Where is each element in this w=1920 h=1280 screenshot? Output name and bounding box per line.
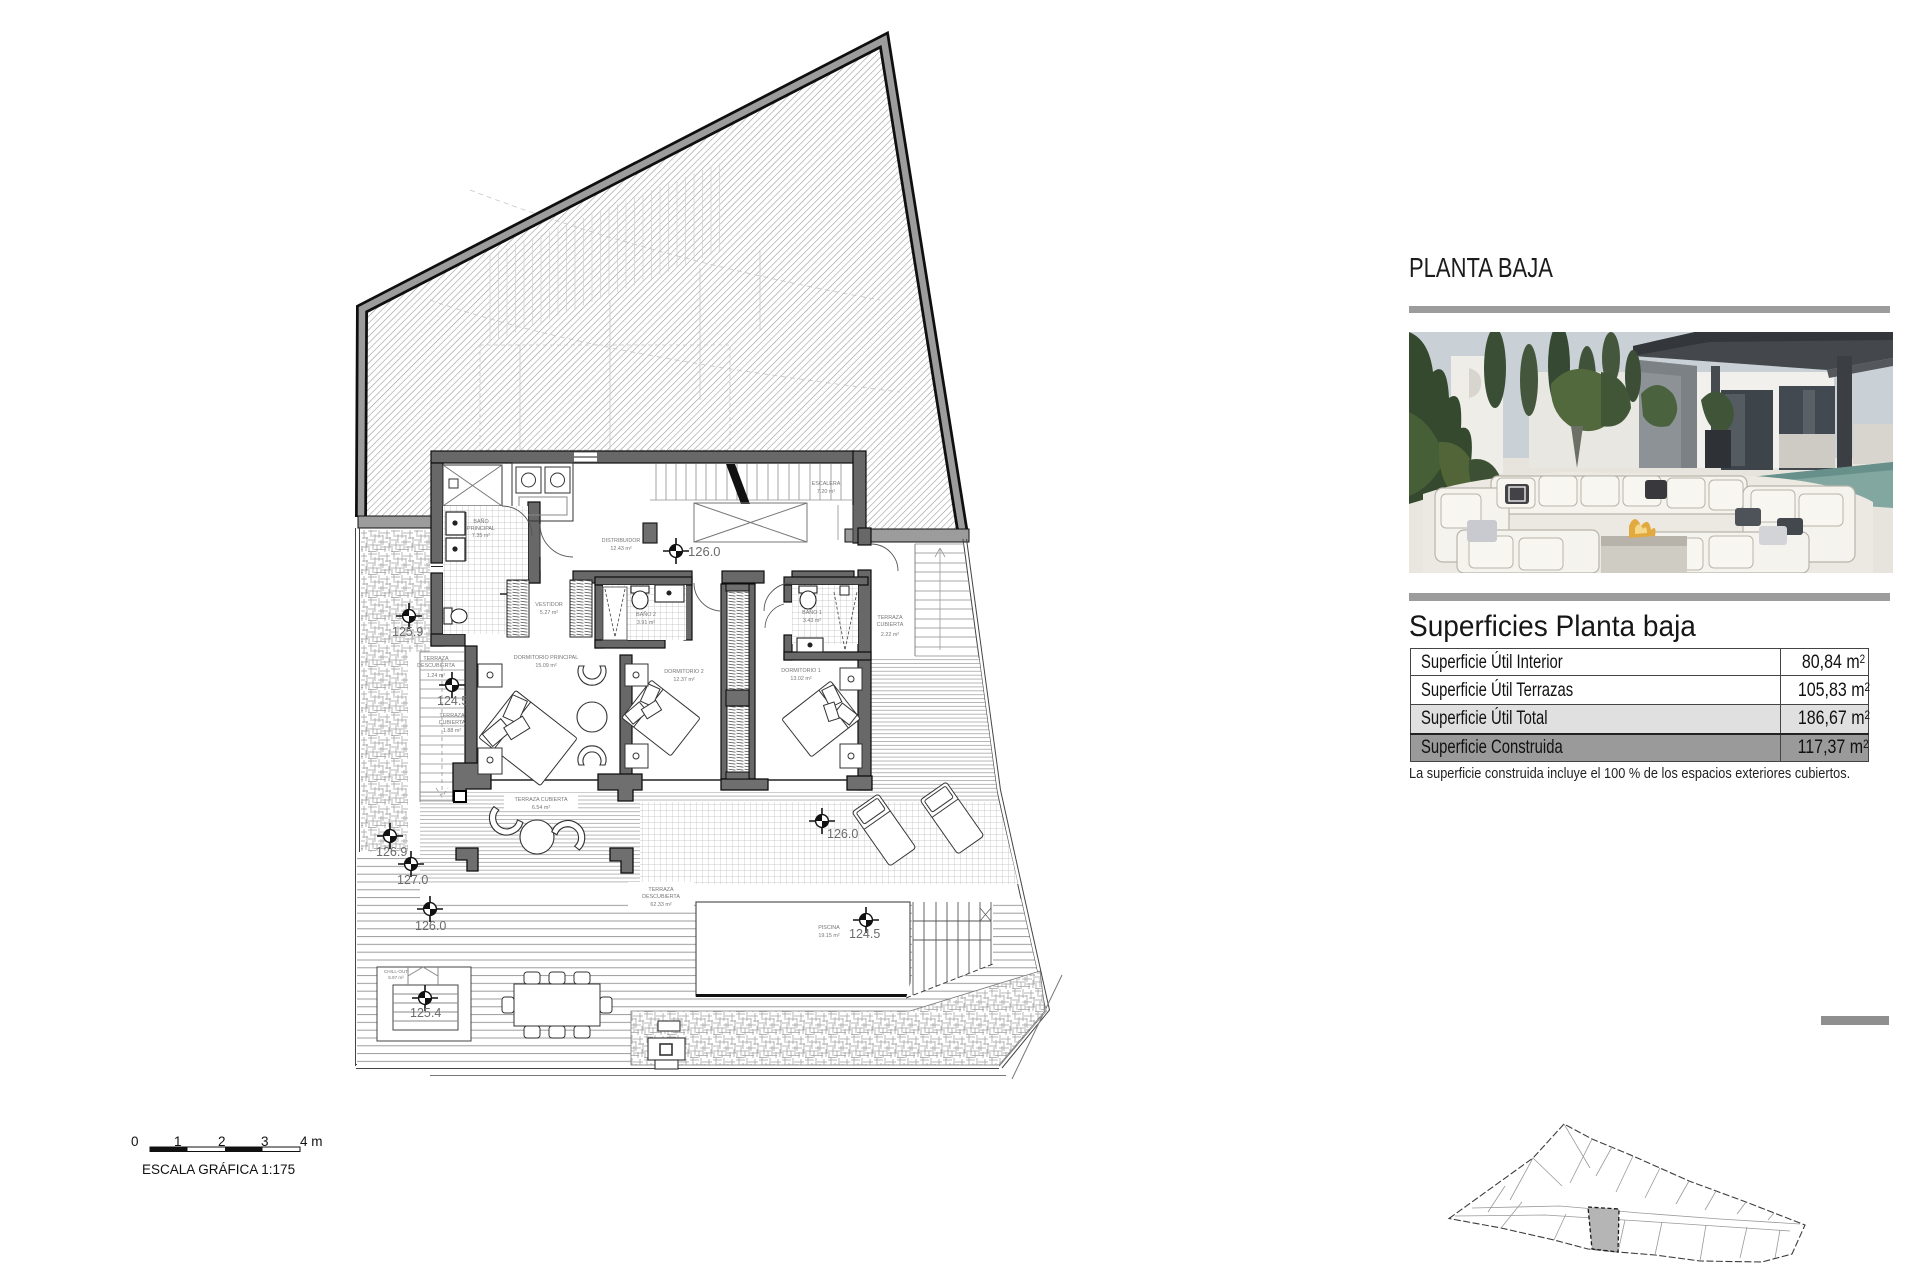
svg-text:PRINCIPAL: PRINCIPAL (467, 526, 495, 532)
svg-text:VESTIDOR: VESTIDOR (535, 602, 563, 608)
svg-text:TERRAZA: TERRAZA (423, 656, 449, 662)
svg-text:TERRAZA: TERRAZA (439, 713, 465, 719)
svg-text:2.22 m²: 2.22 m² (881, 632, 899, 638)
svg-text:CHILL-OUT: CHILL-OUT (384, 969, 408, 974)
svg-text:125.9: 125.9 (392, 625, 423, 639)
svg-text:126.0: 126.0 (415, 919, 446, 933)
svg-text:19.15 m²: 19.15 m² (818, 933, 839, 939)
svg-text:BAÑO 2: BAÑO 2 (636, 611, 656, 618)
svg-text:126.0: 126.0 (827, 827, 858, 841)
svg-text:CUBIERTA: CUBIERTA (439, 720, 466, 726)
svg-text:5.97 m²: 5.97 m² (388, 975, 404, 980)
svg-text:BAÑO: BAÑO (473, 518, 488, 525)
svg-text:BAÑO 1: BAÑO 1 (802, 609, 822, 616)
svg-text:TERRAZA: TERRAZA (648, 887, 674, 893)
svg-text:7.35 m²: 7.35 m² (472, 533, 490, 539)
svg-text:5.27 m²: 5.27 m² (540, 610, 558, 616)
svg-text:DORMITORIO PRINCIPAL: DORMITORIO PRINCIPAL (514, 655, 579, 661)
svg-text:125.4: 125.4 (410, 1006, 441, 1020)
svg-text:ESCALA GRÁFICA 1:175: ESCALA GRÁFICA 1:175 (142, 1162, 295, 1177)
svg-text:12.43 m²: 12.43 m² (610, 546, 631, 552)
svg-text:127.0: 127.0 (397, 873, 428, 887)
svg-text:124.5: 124.5 (849, 927, 880, 941)
svg-text:124.5: 124.5 (437, 694, 468, 708)
svg-text:DORMITORIO 2: DORMITORIO 2 (664, 669, 703, 675)
svg-text:13.02 m²: 13.02 m² (790, 676, 811, 682)
svg-text:CUBIERTA: CUBIERTA (877, 622, 904, 628)
svg-text:0: 0 (131, 1134, 139, 1149)
svg-text:126.0: 126.0 (688, 544, 721, 559)
svg-text:TERRAZA CUBIERTA: TERRAZA CUBIERTA (514, 797, 568, 803)
svg-text:12.37 m²: 12.37 m² (673, 677, 694, 683)
svg-text:PISCINA: PISCINA (818, 925, 840, 931)
svg-text:3.91 m²: 3.91 m² (637, 620, 655, 626)
svg-text:15.09 m²: 15.09 m² (535, 663, 556, 669)
svg-text:4 m: 4 m (300, 1134, 323, 1149)
svg-text:3.43 m²: 3.43 m² (803, 618, 821, 624)
svg-text:ESCALERA: ESCALERA (812, 481, 841, 487)
svg-text:DESCUBIERTA: DESCUBIERTA (417, 663, 455, 669)
svg-text:1.88 m²: 1.88 m² (443, 728, 461, 734)
svg-text:6.54 m²: 6.54 m² (532, 805, 550, 811)
svg-text:DESCUBIERTA: DESCUBIERTA (642, 894, 680, 900)
svg-text:1.24 m²: 1.24 m² (427, 673, 445, 679)
svg-text:DORMITORIO 1: DORMITORIO 1 (781, 668, 820, 674)
svg-text:62.33 m²: 62.33 m² (650, 902, 671, 908)
svg-text:126.9: 126.9 (376, 845, 407, 859)
svg-text:7.20 m²: 7.20 m² (817, 489, 835, 495)
svg-text:TERRAZA: TERRAZA (877, 615, 903, 621)
svg-text:DISTRIBUIDOR: DISTRIBUIDOR (602, 538, 641, 544)
